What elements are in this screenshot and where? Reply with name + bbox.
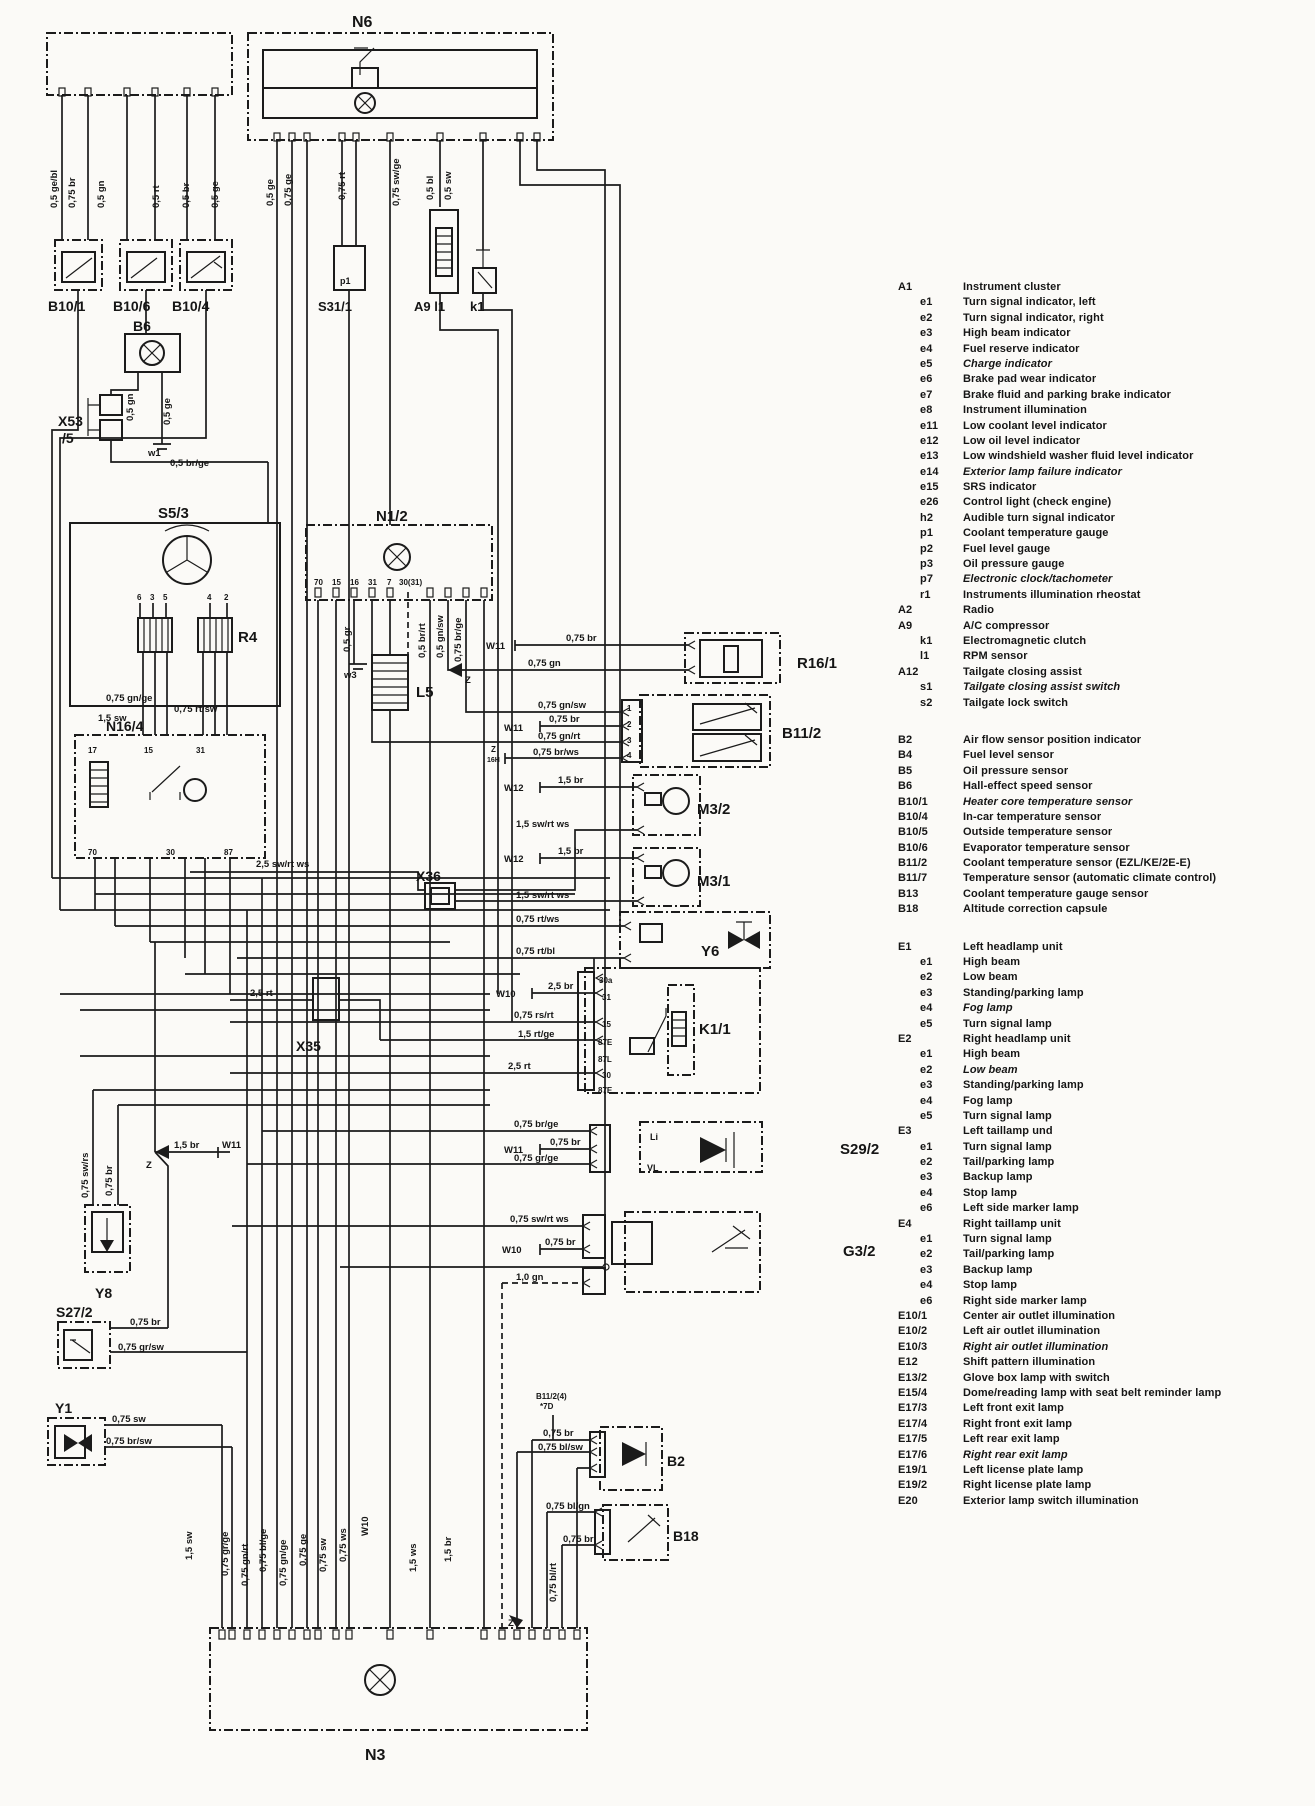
legend-label: Left headlamp unit	[963, 940, 1298, 955]
n3-pin-icon	[514, 1630, 520, 1639]
n3-pin-icon	[274, 1630, 280, 1639]
legend-code: e26	[920, 495, 939, 510]
wire-label: 2,5 sw/rt ws	[256, 859, 309, 870]
legend-label: Right taillamp unit	[963, 1217, 1298, 1232]
wire-label: 1,5 sw	[98, 713, 127, 724]
pin-label: 3	[150, 593, 155, 602]
legend-entry: e4Fog lamp	[898, 1094, 1298, 1109]
component-label: R4	[238, 629, 258, 646]
legend-label: Left rear exit lamp	[963, 1432, 1298, 1447]
legend-entry: B11/7Temperature sensor (automatic clima…	[898, 871, 1298, 886]
legend-entry: B2Air flow sensor position indicator	[898, 733, 1298, 748]
n12-pin-icon	[351, 588, 357, 597]
pin-label: 16	[350, 578, 359, 587]
legend-code: e11	[920, 419, 938, 434]
pin-label: 2	[627, 720, 632, 729]
pin-label: 87L	[598, 1055, 612, 1064]
wire-label: 0,75 gr/sw	[118, 1342, 165, 1353]
legend-entry: e8Instrument illumination	[898, 403, 1298, 418]
legend-code: e5	[920, 1017, 932, 1032]
n12-pin-icon	[481, 588, 487, 597]
legend-label: Turn signal indicator, left	[963, 295, 1298, 310]
wire-label: 0,75 sw/rt ws	[510, 1214, 569, 1225]
legend-code: e2	[920, 1247, 932, 1262]
legend-label: Left air outlet illumination	[963, 1324, 1298, 1339]
n12-pin-icon	[427, 588, 433, 597]
wire-label: Li	[650, 1132, 658, 1142]
wire-label: 0,75 br	[104, 1165, 115, 1196]
legend: A1Instrument clustere1Turn signal indica…	[898, 280, 1298, 1531]
legend-entry: B6Hall-effect speed sensor	[898, 779, 1298, 794]
pin-label: 2	[224, 593, 229, 602]
legend-label: SRS indicator	[963, 480, 1298, 495]
legend-code: e6	[920, 372, 932, 387]
n3-pin-icon	[481, 1630, 487, 1639]
legend-code: e5	[920, 357, 932, 372]
pin-label: 31	[196, 746, 205, 755]
legend-code: h2	[920, 511, 933, 526]
wire-label: 0,5 ge/bl	[49, 170, 60, 208]
legend-code: e3	[920, 986, 932, 1001]
wire-label: W11	[504, 723, 524, 734]
legend-entry: E2Right headlamp unit	[898, 1032, 1298, 1047]
component-label: k1	[470, 299, 484, 314]
legend-label: Electromagnetic clutch	[963, 634, 1298, 649]
pin-label: 3	[627, 736, 632, 745]
connector-pin-icon	[624, 922, 631, 930]
component-label: M3/2	[697, 801, 730, 818]
legend-code: E10/1	[898, 1309, 927, 1324]
pin-label: 4	[207, 593, 212, 602]
wire-label: W10	[360, 1516, 371, 1536]
legend-code: B11/7	[898, 871, 927, 886]
legend-code: e15	[920, 480, 939, 495]
legend-label: Exterior lamp failure indicator	[963, 465, 1298, 480]
legend-entry: e15SRS indicator	[898, 480, 1298, 495]
legend-label: Turn signal lamp	[963, 1140, 1298, 1155]
connector-pin-icon	[590, 1436, 597, 1444]
wire-label: 0,5 br/rt	[417, 622, 428, 658]
legend-code: e4	[920, 1001, 932, 1016]
legend-code: e1	[920, 1047, 932, 1062]
legend-entry: e4Stop lamp	[898, 1278, 1298, 1293]
legend-label: Exterior lamp switch illumination	[963, 1494, 1298, 1509]
legend-label: Instrument illumination	[963, 403, 1298, 418]
wire-label: 0,75 rt/sw	[174, 704, 218, 715]
legend-label: A/C compressor	[963, 619, 1298, 634]
component-label: S31/1	[318, 299, 352, 314]
wire-label: *7D	[540, 1402, 554, 1411]
wire-label: 1,5 rt/ge	[518, 1029, 554, 1040]
legend-label: Fuel level gauge	[963, 542, 1298, 557]
n3-pin-icon	[559, 1630, 565, 1639]
wire-label: 0,75 br/sw	[106, 1436, 153, 1447]
legend-label: Stop lamp	[963, 1186, 1298, 1201]
pin-label: 31	[602, 993, 611, 1002]
component-label: B10/4	[172, 298, 210, 314]
legend-code: E17/4	[898, 1417, 927, 1432]
legend-code: e1	[920, 1232, 932, 1247]
legend-code: e4	[920, 342, 932, 357]
wire-label: 0,5 gr	[342, 626, 353, 652]
connector-pin-icon	[590, 1448, 597, 1456]
wire-label: w3	[343, 670, 357, 681]
legend-entry: E12Shift pattern illumination	[898, 1355, 1298, 1370]
legend-label: Tail/parking lamp	[963, 1155, 1298, 1170]
legend-code: E20	[898, 1494, 918, 1509]
legend-code: B10/6	[898, 841, 928, 856]
connector-pin-icon	[583, 1279, 590, 1287]
legend-label: Low beam	[963, 1063, 1298, 1078]
legend-entry: e26Control light (check engine)	[898, 495, 1298, 510]
legend-label: Backup lamp	[963, 1263, 1298, 1278]
legend-label: Center air outlet illumination	[963, 1309, 1298, 1324]
legend-entry: B10/1Heater core temperature sensor	[898, 795, 1298, 810]
legend-label: Oil pressure sensor	[963, 764, 1298, 779]
wire-label: 2,5 br	[548, 981, 574, 992]
wire-label: Z	[491, 745, 496, 754]
legend-label: Hall-effect speed sensor	[963, 779, 1298, 794]
legend-code: s2	[920, 696, 932, 711]
legend-entry: e2Tail/parking lamp	[898, 1247, 1298, 1262]
component-label: Y6	[701, 943, 719, 960]
legend-label: Glove box lamp with switch	[963, 1371, 1298, 1386]
legend-code: E17/3	[898, 1401, 927, 1416]
connector-pin-icon	[595, 1541, 602, 1549]
wire-label: 0,75 sw	[112, 1414, 146, 1425]
wire-label: 0,75 gn/ge	[106, 693, 152, 704]
legend-code: k1	[920, 634, 932, 649]
component-label: B10/1	[48, 298, 86, 314]
wire-label: 0,75 bl/sw	[538, 1442, 583, 1453]
legend-code: p2	[920, 542, 933, 557]
legend-code: e3	[920, 1170, 932, 1185]
wire-label: 2,5 rt	[508, 1061, 532, 1072]
n3-pin-icon	[244, 1630, 250, 1639]
legend-entry: e3Standing/parking lamp	[898, 1078, 1298, 1093]
wire-label: 0,5 gn	[125, 393, 136, 421]
wire-label: 0,75 br	[550, 1137, 581, 1148]
wire-label: 0,5 ge	[210, 181, 221, 208]
legend-label: Shift pattern illumination	[963, 1355, 1298, 1370]
legend-entry: A2Radio	[898, 603, 1298, 618]
legend-label: Charge indicator	[963, 357, 1298, 372]
wire-label: 0,75 gn	[528, 658, 561, 669]
legend-entry: e1High beam	[898, 955, 1298, 970]
wire-label: 0,75 br	[563, 1534, 594, 1545]
legend-code: e13	[920, 449, 939, 464]
legend-code: B4	[898, 748, 912, 763]
legend-label: Outside temperature sensor	[963, 825, 1298, 840]
component-boxes	[47, 33, 780, 1730]
legend-entry: e6Left side marker lamp	[898, 1201, 1298, 1216]
legend-code: e4	[920, 1094, 932, 1109]
component-label: N6	[352, 14, 373, 31]
component-label: R16/1	[797, 655, 837, 672]
legend-entry: A12Tailgate closing assist	[898, 665, 1298, 680]
legend-code: E12	[898, 1355, 918, 1370]
pin-label: 31	[368, 578, 377, 587]
legend-label: High beam	[963, 955, 1298, 970]
legend-code: E17/6	[898, 1448, 927, 1463]
legend-entry: E15/4Dome/reading lamp with seat belt re…	[898, 1386, 1298, 1401]
wire-label: 0,5 gn	[96, 180, 107, 208]
legend-label: Backup lamp	[963, 1170, 1298, 1185]
legend-code: l1	[920, 649, 929, 664]
legend-label: Dome/reading lamp with seat belt reminde…	[963, 1386, 1298, 1401]
legend-code: p7	[920, 572, 933, 587]
legend-entry: E10/1Center air outlet illumination	[898, 1309, 1298, 1324]
legend-entry: B10/5Outside temperature sensor	[898, 825, 1298, 840]
n12-pin-icon	[463, 588, 469, 597]
legend-label: Stop lamp	[963, 1278, 1298, 1293]
n12-pin-icon	[315, 588, 321, 597]
legend-code: E4	[898, 1217, 912, 1232]
legend-code: B2	[898, 733, 912, 748]
wire-label: W11	[222, 1140, 242, 1151]
connector-pin-icon	[637, 826, 644, 834]
legend-code: e12	[920, 434, 939, 449]
legend-entry: e3Standing/parking lamp	[898, 986, 1298, 1001]
wire-label: w1	[147, 448, 161, 459]
component-label: G3/2	[843, 1243, 876, 1260]
wire-label: 0,75 br	[543, 1428, 574, 1439]
legend-label: Radio	[963, 603, 1298, 618]
pin-label: 15	[602, 1020, 611, 1029]
wire-label: 0,75 br	[545, 1237, 576, 1248]
legend-entry: h2Audible turn signal indicator	[898, 511, 1298, 526]
legend-label: Heater core temperature sensor	[963, 795, 1298, 810]
legend-code: E10/2	[898, 1324, 927, 1339]
legend-code: e8	[920, 403, 932, 418]
legend-entry: B4Fuel level sensor	[898, 748, 1298, 763]
legend-code: e7	[920, 388, 932, 403]
legend-entry: e6Right side marker lamp	[898, 1294, 1298, 1309]
legend-code: E19/1	[898, 1463, 927, 1478]
wire-label: 0,5 br/ge	[170, 458, 209, 469]
legend-label: Turn signal lamp	[963, 1109, 1298, 1124]
wire-label: 0,75 br/ge	[453, 618, 464, 662]
legend-label: High beam	[963, 1047, 1298, 1062]
connector-pin-icon	[590, 1464, 597, 1472]
legend-entry: A1Instrument cluster	[898, 280, 1298, 295]
legend-label: Air flow sensor position indicator	[963, 733, 1298, 748]
pin-label: 87	[224, 848, 233, 857]
legend-code: e1	[920, 955, 932, 970]
wire-label: 0,75 rt	[337, 171, 348, 200]
legend-code: B10/5	[898, 825, 928, 840]
legend-entry: E19/1Left license plate lamp	[898, 1463, 1298, 1478]
legend-entry: e4Stop lamp	[898, 1186, 1298, 1201]
pin-label: 30a	[599, 976, 613, 985]
legend-label: Altitude correction capsule	[963, 902, 1298, 917]
legend-code: e2	[920, 970, 932, 985]
wire-label: 0,5 sw	[443, 171, 454, 200]
pin-label: 15	[332, 578, 341, 587]
wire-label: 0,5 bl	[425, 176, 436, 200]
legend-code: r1	[920, 588, 931, 603]
legend-label: In-car temperature sensor	[963, 810, 1298, 825]
legend-entry: B10/6Evaporator temperature sensor	[898, 841, 1298, 856]
legend-entry: E10/3Right air outlet illumination	[898, 1340, 1298, 1355]
legend-label: Left license plate lamp	[963, 1463, 1298, 1478]
wire-label: 0,75 bl/rt	[548, 1562, 559, 1602]
pin-label: 87E	[598, 1086, 613, 1095]
n3-pin-icon	[304, 1630, 310, 1639]
legend-entry: e6Brake pad wear indicator	[898, 372, 1298, 387]
wire-label: 0,75 ge	[298, 1534, 309, 1566]
legend-label: Brake fluid and parking brake indicator	[963, 388, 1298, 403]
wire-label: 0,5 ge	[265, 179, 276, 206]
legend-label: Coolant temperature gauge sensor	[963, 887, 1298, 902]
wire-label: 1,0 gn	[516, 1272, 544, 1283]
legend-code: B10/4	[898, 810, 928, 825]
legend-code: e4	[920, 1186, 932, 1201]
component-label: B2	[667, 1453, 685, 1469]
legend-entry: B11/2Coolant temperature sensor (EZL/KE/…	[898, 856, 1298, 871]
n12-pin-icon	[387, 588, 393, 597]
pin-label: 6	[137, 593, 142, 602]
component-label: N3	[365, 1747, 386, 1764]
legend-label: Fog lamp	[963, 1094, 1298, 1109]
legend-entry: e4Fuel reserve indicator	[898, 342, 1298, 357]
connector-pin-icon	[590, 1145, 597, 1153]
legend-entry: e12Low oil level indicator	[898, 434, 1298, 449]
component-label: B10/6	[113, 298, 151, 314]
legend-code: e2	[920, 1155, 932, 1170]
wire-label: 0,75 rs/rt	[514, 1010, 554, 1021]
legend-code: B6	[898, 779, 912, 794]
legend-label: Left taillamp und	[963, 1124, 1298, 1139]
legend-code: E3	[898, 1124, 912, 1139]
legend-code: B11/2	[898, 856, 927, 871]
legend-label: Electronic clock/tachometer	[963, 572, 1298, 587]
wire-label: 1,5 sw	[184, 1531, 195, 1560]
wire-label: 1,5 sw/rt ws	[516, 819, 569, 830]
n3-pin-icon	[544, 1630, 550, 1639]
connector-pin-icon	[688, 641, 695, 649]
legend-entry: E1Left headlamp unit	[898, 940, 1298, 955]
wire-label: W12	[504, 783, 524, 794]
legend-entry: e2Turn signal indicator, right	[898, 311, 1298, 326]
wire-label: 0,75 br/ge	[514, 1119, 558, 1130]
legend-entry: s2Tailgate lock switch	[898, 696, 1298, 711]
legend-code: e3	[920, 326, 932, 341]
connector-pin-icon	[583, 1222, 590, 1230]
legend-code: e14	[920, 465, 939, 480]
connector-pin-icon	[590, 1127, 597, 1135]
legend-entry: e3Backup lamp	[898, 1263, 1298, 1278]
wire-label: 0,75 rt/bl	[516, 946, 555, 957]
legend-entry: l1RPM sensor	[898, 649, 1298, 664]
n3-pin-icon	[333, 1630, 339, 1639]
n3-pin-icon	[529, 1630, 535, 1639]
legend-label: Low beam	[963, 970, 1298, 985]
legend-entry: E19/2Right license plate lamp	[898, 1478, 1298, 1493]
legend-code: e2	[920, 1063, 932, 1078]
n3-pin-icon	[219, 1630, 225, 1639]
legend-code: e6	[920, 1294, 932, 1309]
legend-code: E17/5	[898, 1432, 927, 1447]
legend-entry: e11Low coolant level indicator	[898, 419, 1298, 434]
legend-entry: E10/2Left air outlet illumination	[898, 1324, 1298, 1339]
n12-pin-icon	[333, 588, 339, 597]
component-label: S29/2	[840, 1141, 879, 1158]
wire-label: VL	[647, 1163, 659, 1173]
component-label: Y8	[95, 1285, 112, 1301]
legend-label: Turn signal indicator, right	[963, 311, 1298, 326]
wire-label: 0,75 ws	[338, 1528, 349, 1562]
legend-label: Tailgate closing assist switch	[963, 680, 1298, 695]
legend-entry: e1Turn signal lamp	[898, 1140, 1298, 1155]
component-label: B11/2	[782, 725, 821, 742]
legend-entry: e4Fog lamp	[898, 1001, 1298, 1016]
component-label: K1/1	[699, 1021, 731, 1038]
wire-label: 0,75 gr/ge	[514, 1153, 558, 1164]
connector-pin-icon	[583, 1245, 590, 1253]
legend-code: e4	[920, 1278, 932, 1293]
legend-code: E19/2	[898, 1478, 927, 1493]
legend-label: Evaporator temperature sensor	[963, 841, 1298, 856]
wire-label: 1,5 ws	[408, 1543, 419, 1572]
component-label: Y1	[55, 1400, 72, 1416]
legend-group: A1Instrument clustere1Turn signal indica…	[898, 280, 1298, 711]
legend-code: e6	[920, 1201, 932, 1216]
legend-label: Standing/parking lamp	[963, 1078, 1298, 1093]
legend-code: A2	[898, 603, 912, 618]
legend-entry: E17/6Right rear exit lamp	[898, 1448, 1298, 1463]
legend-code: p1	[920, 526, 933, 541]
legend-entry: e1Turn signal indicator, left	[898, 295, 1298, 310]
legend-entry: k1Electromagnetic clutch	[898, 634, 1298, 649]
n3-pin-icon	[229, 1630, 235, 1639]
legend-entry: r1Instruments illumination rheostat	[898, 588, 1298, 603]
wire-label: W11	[486, 641, 506, 652]
n3-pin-icon	[315, 1630, 321, 1639]
legend-label: Oil pressure gauge	[963, 557, 1298, 572]
legend-label: Temperature sensor (automatic climate co…	[963, 871, 1298, 886]
pin-label: 30(31)	[399, 578, 422, 587]
legend-entry: e5Turn signal lamp	[898, 1017, 1298, 1032]
n3-pin-icon	[346, 1630, 352, 1639]
legend-entry: E4Right taillamp unit	[898, 1217, 1298, 1232]
n3-pin-icon	[387, 1630, 393, 1639]
wire-label: W10	[496, 989, 516, 1000]
legend-label: Right headlamp unit	[963, 1032, 1298, 1047]
legend-entry: E3Left taillamp und	[898, 1124, 1298, 1139]
n3-pin-icon	[289, 1630, 295, 1639]
legend-group: E1Left headlamp unite1High beame2Low bea…	[898, 940, 1298, 1509]
connector-pin-icon	[590, 1160, 597, 1168]
wire-label: 16H	[487, 757, 500, 764]
wire-label: Z	[508, 1618, 514, 1629]
wire-label: B11/2(4)	[536, 1392, 567, 1401]
legend-code: e5	[920, 1109, 932, 1124]
legend-label: Right side marker lamp	[963, 1294, 1298, 1309]
legend-entry: B18Altitude correction capsule	[898, 902, 1298, 917]
legend-code: B10/1	[898, 795, 928, 810]
legend-entry: e7Brake fluid and parking brake indicato…	[898, 388, 1298, 403]
component-label: B6	[133, 318, 151, 334]
legend-code: e1	[920, 1140, 932, 1155]
n12-pin-icon	[369, 588, 375, 597]
wire-label: Z	[465, 675, 471, 686]
wire-label: 0,75 br	[566, 633, 597, 644]
legend-entry: e2Tail/parking lamp	[898, 1155, 1298, 1170]
pin-label: 15	[144, 746, 153, 755]
wire-label: 0,75 sw/ge	[391, 158, 402, 206]
legend-entry: e5Turn signal lamp	[898, 1109, 1298, 1124]
